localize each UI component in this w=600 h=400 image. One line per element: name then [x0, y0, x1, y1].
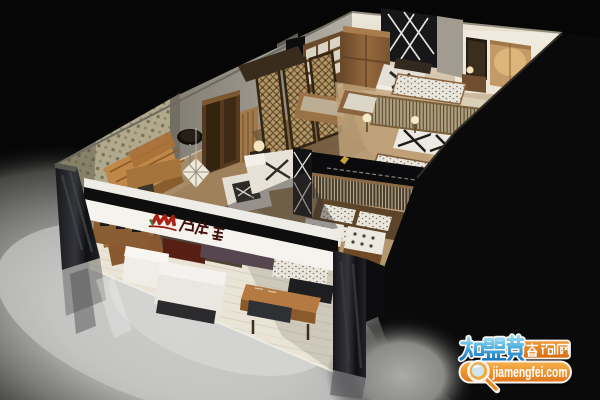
svg-text:jiamengfei.com: jiamengfei.com	[492, 365, 568, 381]
